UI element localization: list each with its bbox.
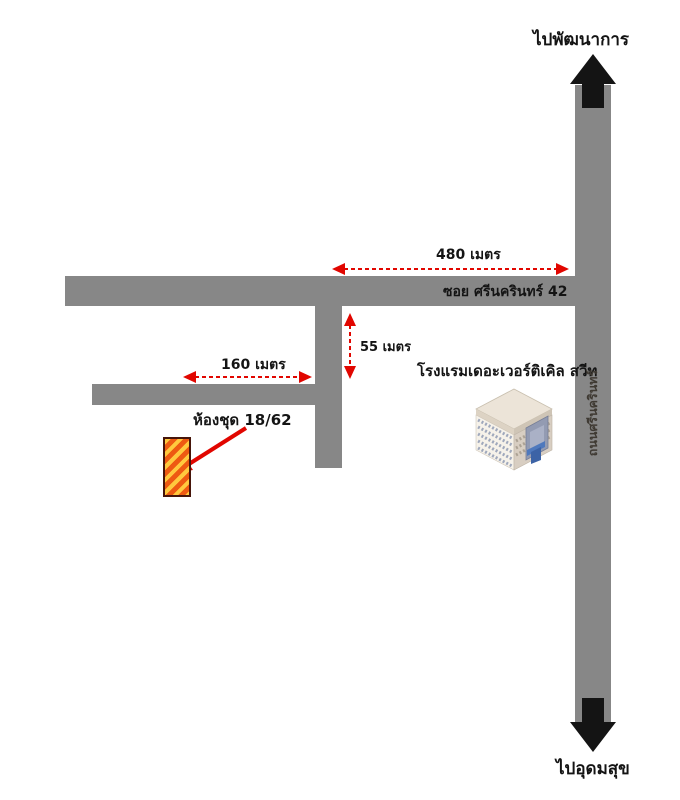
label-distance-480m: 480 เมตร xyxy=(436,244,501,266)
label-main-road-name: ถนนศรีนครินทร์ xyxy=(583,370,603,456)
label-soi-name: ซอย ศรีนครินทร์ 42 xyxy=(443,281,568,303)
label-condo-unit: ห้องชุด 18/62 xyxy=(193,408,292,432)
label-destination-north: ไปพัฒนาการ xyxy=(533,26,629,53)
map-canvas: ไปพัฒนาการ ไปอุดมสุข 480 เมตร ซอย ศรีนคร… xyxy=(0,0,680,800)
label-distance-55m: 55 เมตร xyxy=(360,336,411,357)
condo-unit-marker xyxy=(163,437,191,497)
label-destination-south: ไปอุดมสุข xyxy=(556,755,630,782)
label-distance-160m: 160 เมตร xyxy=(221,354,286,376)
distance-arrow-55m xyxy=(344,313,356,379)
road-branch-left xyxy=(92,384,342,405)
hotel-building-icon xyxy=(474,388,554,472)
road-branch-vertical xyxy=(315,298,342,468)
label-hotel-name: โรงแรมเดอะเวอร์ติเคิล สวีท xyxy=(417,359,597,383)
